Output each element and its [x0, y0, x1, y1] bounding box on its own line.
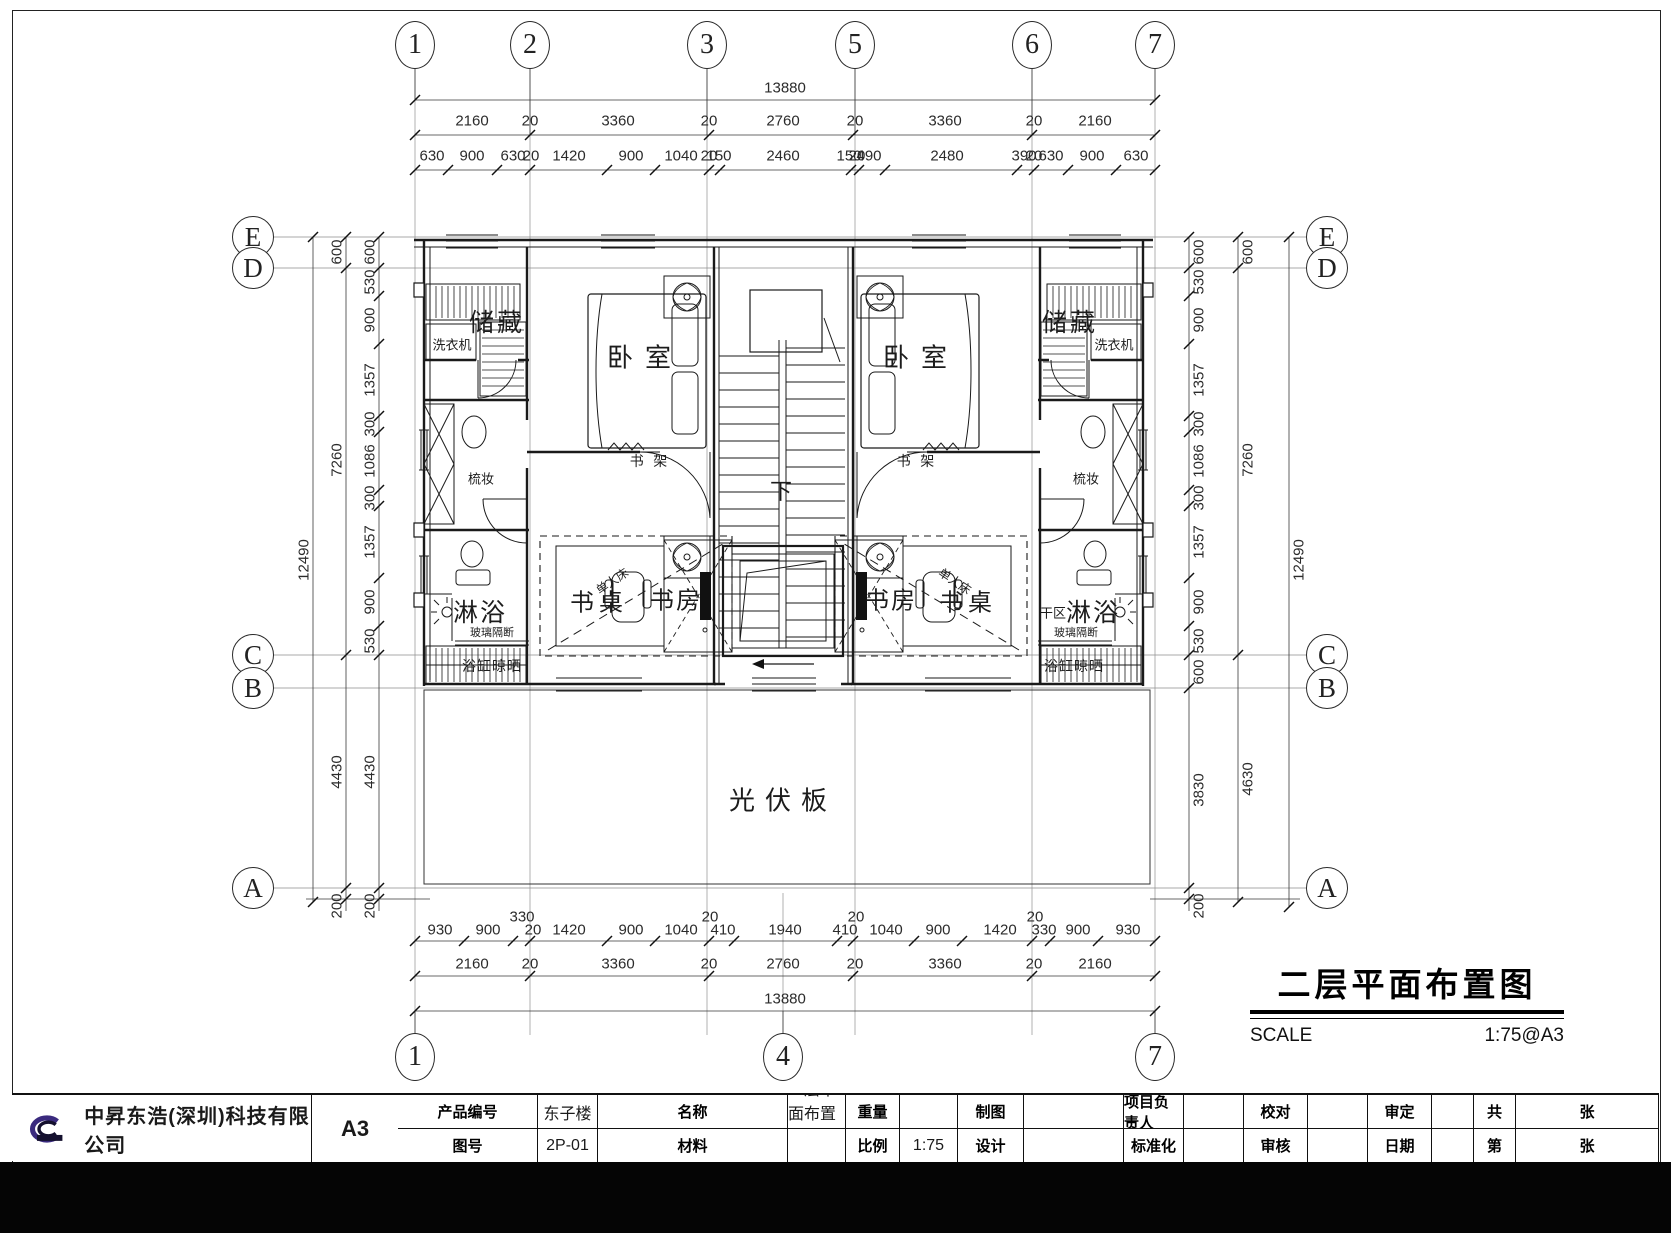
dimension-text: 2160: [455, 956, 488, 973]
dimension-text: 600: [1191, 239, 1208, 264]
dimension-text: 1357: [362, 525, 379, 558]
dimension-text: 930: [1115, 922, 1140, 939]
dimension-text: 3360: [928, 956, 961, 973]
dimension-text: 4630: [1240, 762, 1257, 795]
room-label: 干区: [1040, 603, 1066, 622]
dimension-text: 2760: [766, 956, 799, 973]
dimension-text: 2480: [930, 148, 963, 165]
dimension-text: 900: [362, 307, 379, 332]
dimension-text: 1940: [768, 922, 801, 939]
company-name: 中昇东浩(深圳)科技有限公司: [84, 1100, 311, 1158]
grid-bubble-right: D: [1306, 247, 1348, 289]
company-logo-icon: [20, 1106, 74, 1152]
room-label: 储藏: [1042, 303, 1098, 339]
tb-value: [788, 1129, 846, 1163]
scan-edge-band: [0, 1162, 1671, 1233]
dimension-text: 4430: [329, 755, 346, 788]
room-label: 梳妆: [1073, 469, 1099, 488]
grid-bubble-top: 7: [1135, 21, 1175, 69]
dimension-text: 1040: [869, 922, 902, 939]
dimension-text: 1357: [1191, 525, 1208, 558]
dimension-text: 1420: [552, 922, 585, 939]
dimension-text: 410: [710, 922, 735, 939]
dimension-text: 900: [362, 589, 379, 614]
scale-value: 1:75@A3: [1484, 1025, 1564, 1047]
dimension-text: 1357: [1191, 363, 1208, 396]
dimension-text: 3830: [1191, 773, 1208, 806]
dimension-text: 630: [1123, 148, 1148, 165]
dimension-text: 3360: [601, 956, 634, 973]
dimension-text: 20: [523, 148, 540, 165]
dimension-text: 3360: [601, 113, 634, 130]
grid-bubble-top: 6: [1012, 21, 1052, 69]
grid-bubble-top: 1: [395, 21, 435, 69]
tb-label: 共: [1474, 1095, 1516, 1129]
dimension-text: 600: [362, 239, 379, 264]
dimension-text: 900: [1065, 922, 1090, 939]
drawing-sheet: 储藏洗衣机梳妆淋浴玻璃隔断浴缸晾晒卧室书 架书桌单人床书房储藏洗衣机梳妆干区淋浴…: [0, 0, 1671, 1233]
tb-value: [1308, 1095, 1368, 1129]
dimension-text: 2460: [766, 148, 799, 165]
tb-label: 校对: [1244, 1095, 1308, 1129]
tb-label: 张: [1516, 1095, 1659, 1129]
tb-value: [1184, 1129, 1244, 1163]
dimension-text: 1040: [664, 148, 697, 165]
room-label: 浴缸晾晒: [462, 656, 522, 676]
room-label: 书房: [865, 581, 917, 616]
dimension-text: 20: [522, 956, 539, 973]
tb-label: 标准化: [1124, 1129, 1184, 1163]
tb-value: [1024, 1095, 1124, 1129]
grid-bubble-left: A: [232, 867, 274, 909]
tb-label: 审核: [1244, 1129, 1308, 1163]
dimension-text: 1420: [983, 922, 1016, 939]
tb-label: 第: [1474, 1129, 1516, 1163]
room-label: 卧室: [883, 338, 959, 375]
grid-bubble-left: D: [232, 247, 274, 289]
company-cell: 中昇东浩(深圳)科技有限公司: [12, 1095, 312, 1163]
tb-value: 东子楼: [538, 1095, 598, 1129]
dimension-text: 1086: [1191, 444, 1208, 477]
dimension-text: 150: [706, 148, 731, 165]
room-label: 书房: [650, 581, 702, 616]
tb-value: 1:75: [900, 1129, 958, 1163]
dimension-text: 530: [362, 269, 379, 294]
dimension-text: 530: [362, 628, 379, 653]
dimension-text: 630: [419, 148, 444, 165]
tb-label: 审定: [1368, 1095, 1432, 1129]
dimension-text: 900: [459, 148, 484, 165]
tb-label: 名称: [598, 1095, 788, 1129]
grid-bubble-right: B: [1306, 667, 1348, 709]
annotation-overlay: 储藏洗衣机梳妆淋浴玻璃隔断浴缸晾晒卧室书 架书桌单人床书房储藏洗衣机梳妆干区淋浴…: [0, 0, 1671, 1080]
room-label: 光伏板: [729, 781, 837, 818]
room-label: 下: [770, 474, 792, 506]
scale-label: SCALE: [1250, 1025, 1312, 1047]
dimension-text: 600: [1240, 239, 1257, 264]
tb-value: 2P-01: [538, 1129, 598, 1163]
tb-label: 设计: [958, 1129, 1024, 1163]
tb-label: 图号: [398, 1129, 538, 1163]
grid-bubble-right: A: [1306, 867, 1348, 909]
dimension-text: 330: [1031, 922, 1056, 939]
tb-label: 产品编号: [398, 1095, 538, 1129]
dimension-text: 3360: [928, 113, 961, 130]
dimension-text: 2160: [1078, 956, 1111, 973]
dimension-text: 900: [618, 922, 643, 939]
grid-bubble-top: 3: [687, 21, 727, 69]
dimension-text: 300: [1191, 411, 1208, 436]
tb-label: 比例: [846, 1129, 900, 1163]
dimension-text: 1357: [362, 363, 379, 396]
dimension-text: 2160: [455, 113, 488, 130]
dimension-text: 490: [856, 148, 881, 165]
dimension-text: 930: [427, 922, 452, 939]
drawing-title-group: 二层平面布置图 SCALE 1:75@A3: [1250, 958, 1564, 1047]
dimension-text: 600: [329, 239, 346, 264]
dimension-text: 200: [1191, 893, 1208, 918]
dimension-text: 300: [362, 485, 379, 510]
dimension-text: 20: [522, 113, 539, 130]
dimension-text: 20: [701, 113, 718, 130]
dimension-text: 200: [362, 893, 379, 918]
tb-label: 制图: [958, 1095, 1024, 1129]
dimension-text: 1040: [664, 922, 697, 939]
tb-label: 材料: [598, 1129, 788, 1163]
sheet-size: A3: [312, 1095, 398, 1163]
dimension-text: 410: [832, 922, 857, 939]
title-underline: [1250, 1010, 1564, 1019]
tb-label: 日期: [1368, 1129, 1432, 1163]
dimension-text: 300: [362, 411, 379, 436]
tb-value: [1308, 1129, 1368, 1163]
dimension-text: 2760: [766, 113, 799, 130]
dimension-text: 7260: [329, 443, 346, 476]
dimension-text: 12490: [296, 539, 313, 581]
room-label: 洗衣机: [432, 335, 471, 354]
room-label: 浴缸晾晒: [1044, 656, 1104, 676]
grid-bubble-left: B: [232, 667, 274, 709]
dimension-text: 900: [475, 922, 500, 939]
dimension-text: 20: [1026, 956, 1043, 973]
grid-bubble-top: 5: [835, 21, 875, 69]
title-block-table: 中昇东浩(深圳)科技有限公司 产品编号 东子楼 名称 二层平面布置图 重量 制图…: [12, 1093, 1659, 1161]
room-label: 玻璃隔断: [1054, 624, 1098, 640]
room-label: 书 架: [630, 451, 671, 471]
room-label: 梳妆: [468, 469, 494, 488]
dimension-text: 1086: [362, 444, 379, 477]
dimension-text: 630: [1038, 148, 1063, 165]
dimension-text: 20: [1026, 113, 1043, 130]
tb-value: [1184, 1095, 1244, 1129]
tb-value: 二层平面布置图: [788, 1095, 846, 1129]
room-label: 储藏: [469, 303, 525, 339]
grid-bubble-bottom: 1: [395, 1033, 435, 1081]
dimension-text: 530: [1191, 269, 1208, 294]
dimension-text: 20: [847, 956, 864, 973]
tb-value: [900, 1095, 958, 1129]
dimension-text: 900: [925, 922, 950, 939]
room-label: 玻璃隔断: [470, 624, 514, 640]
room-label: 洗衣机: [1094, 335, 1133, 354]
dimension-text: 4430: [362, 755, 379, 788]
tb-value: [1432, 1129, 1474, 1163]
grid-bubble-bottom: 4: [763, 1033, 803, 1081]
tb-value: [1432, 1095, 1474, 1129]
dimension-text: 900: [1191, 589, 1208, 614]
dimension-text: 13880: [764, 80, 806, 97]
dimension-text: 20: [701, 956, 718, 973]
dimension-text: 900: [1079, 148, 1104, 165]
tb-value: [1024, 1129, 1124, 1163]
grid-bubble-bottom: 7: [1135, 1033, 1175, 1081]
dimension-text: 2160: [1078, 113, 1111, 130]
dimension-text: 20: [847, 113, 864, 130]
dimension-text: 1420: [552, 148, 585, 165]
room-label: 书 架: [897, 451, 938, 471]
dimension-text: 530: [1191, 628, 1208, 653]
dimension-text: 900: [618, 148, 643, 165]
dimension-text: 900: [1191, 307, 1208, 332]
tb-label: 重量: [846, 1095, 900, 1129]
grid-bubble-top: 2: [510, 21, 550, 69]
drawing-title: 二层平面布置图: [1250, 958, 1564, 1006]
dimension-text: 7260: [1240, 443, 1257, 476]
dimension-text: 20: [525, 922, 542, 939]
dimension-text: 300: [1191, 485, 1208, 510]
dimension-text: 12490: [1291, 539, 1308, 581]
dimension-text: 13880: [764, 991, 806, 1008]
dimension-text: 600: [1191, 659, 1208, 684]
dimension-text: 200: [329, 893, 346, 918]
room-label: 卧室: [607, 338, 683, 375]
tb-label: 项目负责人: [1124, 1095, 1184, 1129]
tb-label: 张: [1516, 1129, 1659, 1163]
